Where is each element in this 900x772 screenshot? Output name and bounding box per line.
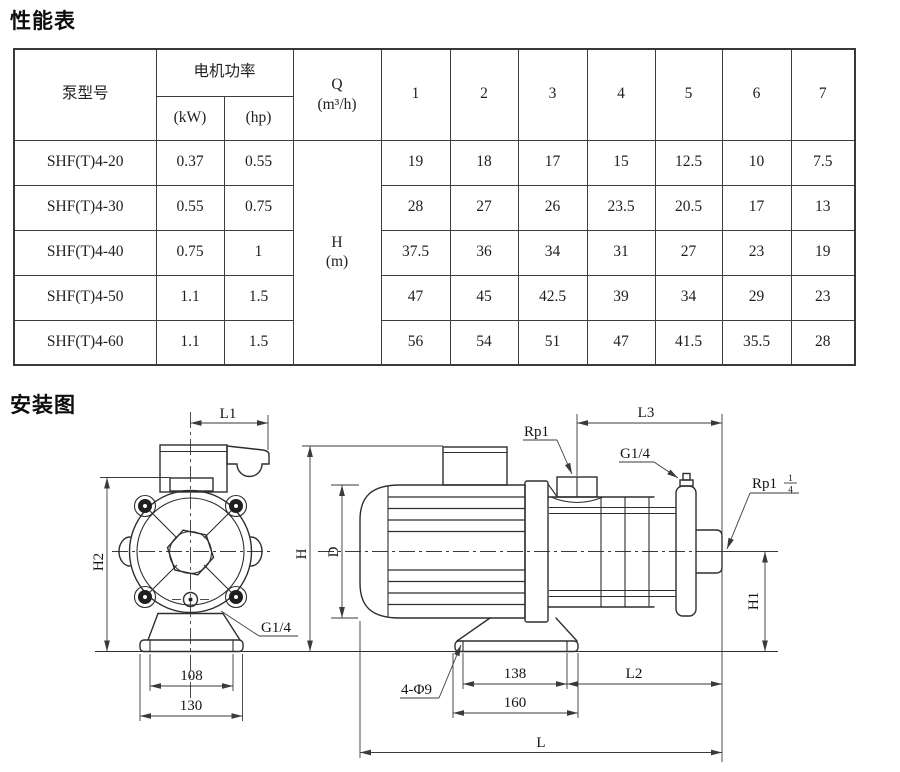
th-flow: Q (m³/h) [293, 49, 381, 140]
dim-l1: L1 [220, 406, 237, 422]
table-row: SHF(T)4-50 1.1 1.5 47 45 42.5 39 34 29 2… [14, 275, 855, 320]
cell-head: 41.5 [655, 320, 722, 365]
cell-model: SHF(T)4-50 [14, 275, 156, 320]
cell-head: 15 [587, 140, 655, 185]
base-plate-side [455, 641, 578, 652]
cell-head: 17 [518, 140, 587, 185]
dim-130: 130 [180, 698, 203, 714]
dim-h1: H1 [746, 592, 762, 610]
svg-text:4: 4 [788, 486, 793, 496]
dim-l2: L2 [626, 666, 643, 682]
cell-model: SHF(T)4-30 [14, 185, 156, 230]
th-flow-7: 7 [791, 49, 855, 140]
dim-160: 160 [504, 695, 527, 711]
cell-hp: 0.55 [224, 140, 293, 185]
cell-head: 23.5 [587, 185, 655, 230]
th-flow-5: 5 [655, 49, 722, 140]
cell-head: 19 [381, 140, 450, 185]
installation-drawing: L1 H2 G1/4 108 130 H [0, 380, 900, 772]
dim-l: L [536, 735, 545, 751]
suction-end-flange [676, 486, 696, 616]
cell-hp: 1 [224, 230, 293, 275]
cell-head: 29 [722, 275, 791, 320]
cell-head: 37.5 [381, 230, 450, 275]
cell-head: 47 [587, 320, 655, 365]
pump-front-view [112, 412, 272, 700]
cell-head: 23 [791, 275, 855, 320]
label-g14-side: G1/4 [620, 446, 651, 462]
motor-fins [389, 497, 526, 605]
th-head-symbol: H [294, 233, 381, 252]
cell-head: 28 [381, 185, 450, 230]
table-row: SHF(T)4-20 0.37 0.55 H (m) 19 18 17 15 1… [14, 140, 855, 185]
cell-head: 10 [722, 140, 791, 185]
th-head: H (m) [293, 140, 381, 365]
cell-kw: 0.55 [156, 185, 224, 230]
dim-h2: H2 [91, 553, 107, 571]
label-mounting-holes: 4-Φ9 [401, 682, 432, 698]
cell-model: SHF(T)4-60 [14, 320, 156, 365]
cell-head: 18 [450, 140, 518, 185]
th-pump-model: 泵型号 [14, 49, 156, 140]
cell-kw: 0.75 [156, 230, 224, 275]
pump-side-view [318, 447, 722, 652]
dim-d: D [326, 546, 342, 557]
cell-hp: 1.5 [224, 320, 293, 365]
cell-head: 17 [722, 185, 791, 230]
table-row: SHF(T)4-40 0.75 1 37.5 36 34 31 27 23 19 [14, 230, 855, 275]
th-flow-symbol: Q [294, 75, 381, 94]
pressure-spout [227, 446, 269, 477]
th-flow-unit: (m³/h) [294, 95, 381, 114]
th-hp: (hp) [224, 96, 293, 140]
cell-head: 13 [791, 185, 855, 230]
cell-head: 36 [450, 230, 518, 275]
cell-head: 51 [518, 320, 587, 365]
th-flow-3: 3 [518, 49, 587, 140]
cell-head: 34 [655, 275, 722, 320]
cell-head: 20.5 [655, 185, 722, 230]
th-head-unit: (m) [294, 252, 381, 271]
performance-table-title: 性能表 [10, 5, 76, 35]
cell-head: 47 [381, 275, 450, 320]
cell-head: 56 [381, 320, 450, 365]
th-flow-6: 6 [722, 49, 791, 140]
cell-head: 12.5 [655, 140, 722, 185]
cell-head: 28 [791, 320, 855, 365]
dimension-annotations: L1 H2 G1/4 108 130 H [91, 405, 799, 762]
cell-kw: 1.1 [156, 275, 224, 320]
cell-head: 7.5 [791, 140, 855, 185]
svg-text:Rp1: Rp1 [752, 476, 777, 492]
cell-hp: 1.5 [224, 275, 293, 320]
svg-text:1: 1 [788, 474, 793, 484]
cell-head: 54 [450, 320, 518, 365]
th-flow-1: 1 [381, 49, 450, 140]
dim-108: 108 [180, 668, 203, 684]
cell-head: 31 [587, 230, 655, 275]
cell-head: 39 [587, 275, 655, 320]
cell-head: 27 [450, 185, 518, 230]
cell-kw: 1.1 [156, 320, 224, 365]
dim-l3: L3 [638, 405, 655, 421]
cell-hp: 0.75 [224, 185, 293, 230]
dim-h: H [294, 548, 310, 559]
cell-model: SHF(T)4-20 [14, 140, 156, 185]
table-row: SHF(T)4-60 1.1 1.5 56 54 51 47 41.5 35.5… [14, 320, 855, 365]
performance-table: 泵型号 电机功率 Q (m³/h) 1 2 3 4 5 6 7 (kW) (hp… [13, 48, 856, 366]
th-flow-4: 4 [587, 49, 655, 140]
cell-head: 34 [518, 230, 587, 275]
table-row: SHF(T)4-30 0.55 0.75 28 27 26 23.5 20.5 … [14, 185, 855, 230]
cell-head: 26 [518, 185, 587, 230]
cell-kw: 0.37 [156, 140, 224, 185]
cell-head: 35.5 [722, 320, 791, 365]
cell-head: 23 [722, 230, 791, 275]
th-kw: (kW) [156, 96, 224, 140]
th-motor-power: 电机功率 [156, 49, 293, 96]
base-plate-front [140, 640, 243, 652]
th-flow-2: 2 [450, 49, 518, 140]
cell-head: 45 [450, 275, 518, 320]
dim-138: 138 [504, 666, 527, 682]
datasheet-page: 性能表 泵型号 电机功率 Q (m³/h) 1 2 3 4 5 6 7 (kW)… [0, 0, 900, 772]
label-rp1-quarter: Rp1 1 4 [727, 474, 799, 549]
cell-head: 19 [791, 230, 855, 275]
vent-plug [680, 474, 693, 487]
cell-model: SHF(T)4-40 [14, 230, 156, 275]
cell-head: 42.5 [518, 275, 587, 320]
cell-head: 27 [655, 230, 722, 275]
label-g14-front: G1/4 [261, 620, 292, 636]
pump-barrel [548, 497, 676, 607]
label-rp1: Rp1 [524, 424, 549, 440]
